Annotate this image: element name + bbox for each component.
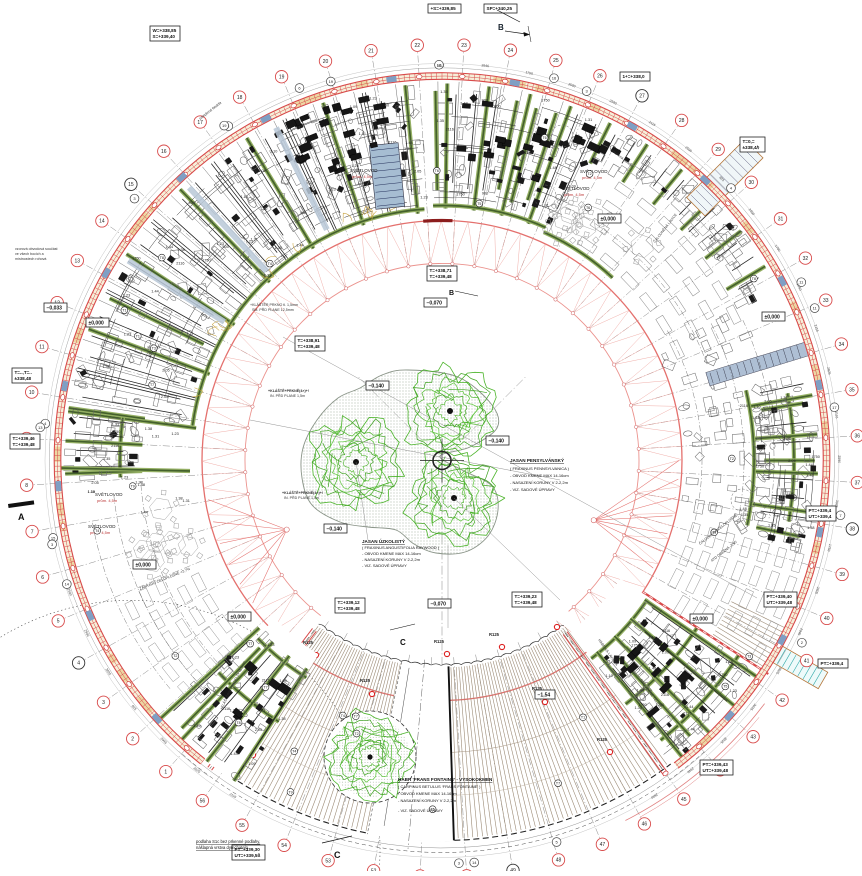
svg-text:T=+339,48: T=+339,48 xyxy=(298,344,321,349)
svg-text:ve všech bocich a: ve všech bocich a xyxy=(15,252,44,256)
svg-text:45: 45 xyxy=(681,797,687,803)
svg-text:40: 40 xyxy=(824,616,830,622)
svg-text:1.31: 1.31 xyxy=(780,396,787,400)
svg-text:SM. PŘD PLANE 12,5mm: SM. PŘD PLANE 12,5mm xyxy=(252,307,294,312)
svg-text:T5: T5 xyxy=(723,685,727,689)
svg-text:1750: 1750 xyxy=(202,258,210,262)
svg-text:1750: 1750 xyxy=(541,98,549,102)
svg-text:1750: 1750 xyxy=(756,465,764,469)
svg-text:W=+338,85: W=+338,85 xyxy=(153,28,177,33)
svg-text:2590: 2590 xyxy=(837,455,841,463)
svg-text:1.38: 1.38 xyxy=(177,248,184,252)
svg-text:−1,54: −1,54 xyxy=(538,693,551,699)
svg-text:T=+339,46: T=+339,46 xyxy=(13,436,36,441)
svg-text:13: 13 xyxy=(75,258,81,264)
svg-text:1.44: 1.44 xyxy=(151,290,158,294)
svg-text:−0,070: −0,070 xyxy=(431,602,447,608)
svg-text:T8: T8 xyxy=(160,256,164,260)
svg-text:1.35: 1.35 xyxy=(784,436,791,440)
svg-text:- NASAZENÍ KORUNY V 2-2,2m: - NASAZENÍ KORUNY V 2-2,2m xyxy=(362,557,421,562)
svg-text:JASAN PENSYLVÁNSKÝ: JASAN PENSYLVÁNSKÝ xyxy=(510,457,564,463)
svg-text:T=+338,91: T=+338,91 xyxy=(298,338,321,343)
svg-text:22: 22 xyxy=(415,43,421,49)
svg-text:2946: 2946 xyxy=(481,63,489,68)
svg-text:SVĚTLOVOD: SVĚTLOVOD xyxy=(580,167,608,174)
svg-text:2.05: 2.05 xyxy=(414,170,421,174)
svg-text:1.31: 1.31 xyxy=(152,434,159,438)
svg-text:1.10: 1.10 xyxy=(251,701,258,705)
svg-text:1.23: 1.23 xyxy=(420,196,427,200)
svg-text:( CARPINUS BETULUS ‘FRANS FONT: ( CARPINUS BETULUS ‘FRANS FONTAINE’ ) xyxy=(398,784,481,789)
svg-text:1.48: 1.48 xyxy=(138,483,145,487)
svg-text:14: 14 xyxy=(65,582,70,587)
svg-text:B: B xyxy=(449,290,454,297)
svg-text:2.05: 2.05 xyxy=(788,459,795,463)
svg-text:T=+339,23: T=+339,23 xyxy=(515,594,538,599)
svg-text:IN. PŘD PLANE 1,5m: IN. PŘD PLANE 1,5m xyxy=(270,393,305,398)
svg-text:900: 900 xyxy=(494,105,500,109)
svg-text:−0,070: −0,070 xyxy=(427,301,443,307)
svg-text:1.09: 1.09 xyxy=(258,169,265,173)
svg-text:54: 54 xyxy=(281,843,287,849)
svg-text:48: 48 xyxy=(556,858,562,864)
svg-text:T2: T2 xyxy=(354,732,358,736)
svg-text:1750: 1750 xyxy=(437,64,445,68)
svg-text:−0,140: −0,140 xyxy=(489,439,505,445)
svg-text:C: C xyxy=(334,850,341,860)
svg-text:1.35: 1.35 xyxy=(103,457,110,461)
svg-text:1750: 1750 xyxy=(523,151,531,155)
svg-text:34: 34 xyxy=(839,342,845,348)
svg-text:10: 10 xyxy=(29,390,35,396)
svg-text:1750: 1750 xyxy=(132,257,140,261)
svg-text:29: 29 xyxy=(715,147,721,153)
svg-text:1.38: 1.38 xyxy=(145,427,152,431)
svg-text:19: 19 xyxy=(329,79,334,84)
svg-text:UT=+339,48: UT=+339,48 xyxy=(703,768,729,773)
svg-text:T6: T6 xyxy=(586,206,590,210)
svg-text:18: 18 xyxy=(237,95,243,101)
svg-text:T=+339,12: T=+339,12 xyxy=(338,600,361,605)
svg-text:35: 35 xyxy=(849,387,855,393)
svg-text:T4: T4 xyxy=(95,529,99,533)
svg-text:5: 5 xyxy=(57,619,60,625)
svg-text:+KLÁŠTĚR PRKNO tl. 1,5mm: +KLÁŠTĚR PRKNO tl. 1,5mm xyxy=(250,302,298,307)
svg-text:2116: 2116 xyxy=(740,404,748,408)
svg-text:1.10: 1.10 xyxy=(753,405,760,409)
svg-text:1.38: 1.38 xyxy=(404,147,411,151)
svg-text:2.05: 2.05 xyxy=(161,395,168,399)
svg-text:1.31: 1.31 xyxy=(112,422,119,426)
svg-text:1.10: 1.10 xyxy=(260,207,267,211)
svg-text:6: 6 xyxy=(41,575,44,581)
svg-text:- VIZ. SADOVÉ ÚPRAVY: - VIZ. SADOVÉ ÚPRAVY xyxy=(398,808,443,813)
svg-text:1.44: 1.44 xyxy=(637,688,644,692)
svg-text:19: 19 xyxy=(279,75,285,81)
svg-text:T2: T2 xyxy=(587,172,591,176)
svg-text:1.35: 1.35 xyxy=(603,660,610,664)
svg-text:1.23: 1.23 xyxy=(171,432,178,436)
svg-text:T5: T5 xyxy=(477,202,481,206)
svg-text:28: 28 xyxy=(679,118,685,124)
svg-text:900: 900 xyxy=(482,191,488,195)
svg-text:prům. 4,5m: prům. 4,5m xyxy=(97,498,118,503)
svg-text:1.31: 1.31 xyxy=(183,499,190,503)
svg-text:1.10: 1.10 xyxy=(241,195,248,199)
svg-text:1.44: 1.44 xyxy=(686,705,693,709)
svg-text:T2: T2 xyxy=(730,457,734,461)
svg-text:55: 55 xyxy=(239,823,245,829)
svg-text:A: A xyxy=(18,512,25,522)
svg-text:1.09: 1.09 xyxy=(248,762,255,766)
svg-text:+S=+339,85: +S=+339,85 xyxy=(431,6,457,11)
svg-text:2.05: 2.05 xyxy=(764,400,771,404)
svg-text:1.10: 1.10 xyxy=(193,724,200,728)
svg-text:T4: T4 xyxy=(268,262,272,266)
svg-text:7: 7 xyxy=(31,529,34,535)
svg-text:T9: T9 xyxy=(288,790,292,794)
svg-text:±0,000: ±0,000 xyxy=(136,563,151,569)
svg-text:16: 16 xyxy=(552,76,557,81)
svg-text:2116: 2116 xyxy=(661,693,669,697)
svg-text:R125: R125 xyxy=(434,639,445,644)
svg-text:1.44: 1.44 xyxy=(805,463,812,467)
svg-text:25: 25 xyxy=(553,58,559,64)
svg-text:±0,000: ±0,000 xyxy=(231,615,246,621)
svg-text:2116: 2116 xyxy=(786,492,794,496)
svg-text:1.48: 1.48 xyxy=(247,720,254,724)
svg-text:1.23: 1.23 xyxy=(267,643,274,647)
svg-text:20: 20 xyxy=(323,59,329,65)
svg-text:T3: T3 xyxy=(152,347,156,351)
svg-text:36: 36 xyxy=(855,434,861,440)
svg-text:3: 3 xyxy=(102,700,105,706)
svg-text:- VIZ. SADOVÉ ÚPRAVY: - VIZ. SADOVÉ ÚPRAVY xyxy=(510,487,555,492)
svg-text:1.23: 1.23 xyxy=(121,475,128,479)
svg-text:1.44: 1.44 xyxy=(648,635,655,639)
svg-text:T=+339,48: T=+339,48 xyxy=(430,274,453,279)
svg-text:T4: T4 xyxy=(292,750,296,754)
svg-text:1.23: 1.23 xyxy=(369,97,376,101)
svg-text:2116: 2116 xyxy=(786,539,794,543)
svg-text:T8: T8 xyxy=(752,277,756,281)
svg-text:1: 1 xyxy=(164,769,167,775)
svg-text:2116: 2116 xyxy=(262,679,270,683)
svg-text:T=+338,71: T=+338,71 xyxy=(430,268,453,273)
svg-text:UT=+339,5ß: UT=+339,5ß xyxy=(235,853,261,858)
svg-text:prům. 4,5m: prům. 4,5m xyxy=(352,174,373,179)
svg-text:2: 2 xyxy=(131,737,134,743)
svg-text:37: 37 xyxy=(855,480,861,486)
svg-text:- VIZ. SADOVÉ ÚPRAVY: - VIZ. SADOVÉ ÚPRAVY xyxy=(362,563,407,568)
svg-text:4: 4 xyxy=(77,661,80,667)
svg-text:PT=+339,4: PT=+339,4 xyxy=(809,508,832,513)
svg-text:T2: T2 xyxy=(173,654,177,658)
svg-text:26: 26 xyxy=(597,74,603,80)
svg-text:T4: T4 xyxy=(341,714,345,718)
svg-text:- OBVOD KMENE MAX 14-16cm: - OBVOD KMENE MAX 14-16cm xyxy=(362,551,421,556)
svg-text:1.31: 1.31 xyxy=(251,238,258,242)
svg-text:prům. 4,5m: prům. 4,5m xyxy=(564,192,585,197)
svg-text:PT=+339,43: PT=+339,43 xyxy=(703,762,729,767)
svg-text:15: 15 xyxy=(51,535,56,540)
svg-text:−0,033: −0,033 xyxy=(47,306,63,312)
svg-text:1.38: 1.38 xyxy=(278,717,285,721)
svg-text:SP=+340,25: SP=+340,25 xyxy=(487,6,513,11)
svg-text:53: 53 xyxy=(325,858,331,864)
svg-text:T1: T1 xyxy=(122,309,126,313)
svg-text:1.10: 1.10 xyxy=(88,490,95,494)
svg-text:( FRAXINUS ANGUSTIFOLIA RAYWOO: ( FRAXINUS ANGUSTIFOLIA RAYWOOD ) xyxy=(362,545,440,550)
svg-text:2116: 2116 xyxy=(176,261,184,265)
svg-text:T=+339,48: T=+339,48 xyxy=(13,442,36,447)
svg-text:- NASAZENÍ KORUNY V 2-2,2m: - NASAZENÍ KORUNY V 2-2,2m xyxy=(398,798,457,803)
svg-text:- OBVOD KMENE MAX 14-16cm: - OBVOD KMENE MAX 14-16cm xyxy=(398,791,457,796)
svg-text:16: 16 xyxy=(161,149,167,155)
svg-text:B: B xyxy=(498,23,504,32)
svg-text:1.44: 1.44 xyxy=(687,728,694,732)
svg-text:1.35: 1.35 xyxy=(275,246,282,250)
svg-text:- OBVOD KMENE MAX 14-16cm: - OBVOD KMENE MAX 14-16cm xyxy=(510,473,569,478)
svg-text:místnostech rohová: místnostech rohová xyxy=(15,257,46,261)
svg-text:- NASAZENÍ KORUNY V 2-2,2m: - NASAZENÍ KORUNY V 2-2,2m xyxy=(510,480,569,485)
svg-text:+KLÁŠTĚ+PRKNĚ(4×)+!: +KLÁŠTĚ+PRKNĚ(4×)+! xyxy=(268,388,309,393)
svg-text:vzorová obvodová součást: vzorová obvodová součást xyxy=(15,247,58,251)
svg-text:T1: T1 xyxy=(581,716,585,720)
svg-text:1.10: 1.10 xyxy=(270,149,277,153)
svg-text:T7: T7 xyxy=(263,686,267,690)
svg-text:56: 56 xyxy=(200,798,206,804)
svg-text:21: 21 xyxy=(368,48,374,54)
svg-text:1.38: 1.38 xyxy=(103,365,110,369)
svg-text:1.23: 1.23 xyxy=(328,187,335,191)
svg-text:38: 38 xyxy=(850,527,856,533)
svg-text:1.10: 1.10 xyxy=(605,674,612,678)
svg-text:T=..,T=..: T=..,T=.. xyxy=(15,370,32,375)
svg-text:32: 32 xyxy=(803,256,809,262)
svg-text:T6: T6 xyxy=(542,136,546,140)
svg-text:SVĚTLOVOD: SVĚTLOVOD xyxy=(562,184,590,191)
svg-text:1.38: 1.38 xyxy=(807,526,814,530)
svg-text:S=+339,40: S=+339,40 xyxy=(153,34,176,39)
svg-text:SVĚTLOVOD: SVĚTLOVOD xyxy=(95,490,123,497)
svg-text:1.48: 1.48 xyxy=(405,141,412,145)
svg-text:T9: T9 xyxy=(131,484,135,488)
svg-text:1.31: 1.31 xyxy=(264,274,271,278)
svg-text:JASAN ÚZKOLISTÝ: JASAN ÚZKOLISTÝ xyxy=(362,538,405,544)
svg-text:43: 43 xyxy=(750,735,756,741)
svg-text:PT=+339,40: PT=+339,40 xyxy=(767,594,793,599)
svg-text:IN. PŘD PLANE 1,5m: IN. PŘD PLANE 1,5m xyxy=(284,495,319,500)
svg-text:UT=+339,4: UT=+339,4 xyxy=(809,514,832,519)
svg-text:R125: R125 xyxy=(303,640,314,645)
svg-text:2.05: 2.05 xyxy=(91,481,98,485)
svg-text:30: 30 xyxy=(749,180,755,186)
svg-text:19: 19 xyxy=(222,123,227,128)
svg-text:1.31: 1.31 xyxy=(359,132,366,136)
svg-text:T=0,=: T=0,= xyxy=(743,139,755,144)
svg-text:−0,140: −0,140 xyxy=(369,384,385,390)
svg-text:1.48: 1.48 xyxy=(549,166,556,170)
svg-text:1750: 1750 xyxy=(811,455,819,459)
svg-text:900: 900 xyxy=(300,211,306,215)
svg-text:T7: T7 xyxy=(248,642,252,646)
svg-text:T7: T7 xyxy=(556,782,560,786)
svg-text:±0,000: ±0,000 xyxy=(601,217,616,223)
svg-text:UT=+339,48: UT=+339,48 xyxy=(767,600,793,605)
svg-text:2.05: 2.05 xyxy=(255,728,262,732)
svg-text:27: 27 xyxy=(639,94,645,100)
svg-text:T=+339,48: T=+339,48 xyxy=(338,606,361,611)
svg-text:15: 15 xyxy=(128,182,134,188)
svg-text:1.35: 1.35 xyxy=(440,90,447,94)
svg-text:T8: T8 xyxy=(236,721,240,725)
svg-text:14: 14 xyxy=(99,219,105,225)
svg-text:R125: R125 xyxy=(597,737,608,742)
svg-text:2116: 2116 xyxy=(446,127,454,131)
svg-text:11: 11 xyxy=(39,344,44,350)
svg-text:1+=+338,0: 1+=+338,0 xyxy=(623,74,646,79)
svg-text:±338,4ℎ: ±338,4ℎ xyxy=(743,145,760,150)
svg-text:C: C xyxy=(400,638,406,647)
svg-text:1.38: 1.38 xyxy=(175,497,182,501)
svg-text:1750: 1750 xyxy=(719,673,727,677)
svg-text:( FRAXINUS PENNSYLVANICA ): ( FRAXINUS PENNSYLVANICA ) xyxy=(510,466,570,471)
svg-text:39: 39 xyxy=(839,572,845,578)
svg-text:17: 17 xyxy=(832,405,837,410)
svg-text:±0,000: ±0,000 xyxy=(693,617,708,623)
svg-text:1.23: 1.23 xyxy=(730,689,737,693)
svg-text:T3: T3 xyxy=(747,655,751,659)
svg-text:SVĚTLOVOD: SVĚTLOVOD xyxy=(88,522,116,529)
svg-text:1.44: 1.44 xyxy=(230,752,237,756)
svg-text:1.09: 1.09 xyxy=(629,639,636,643)
svg-text:PT=+339,4: PT=+339,4 xyxy=(821,661,844,666)
svg-text:±0,000: ±0,000 xyxy=(765,315,780,321)
svg-text:2116: 2116 xyxy=(662,629,670,633)
svg-text:13: 13 xyxy=(38,425,43,430)
svg-text:31: 31 xyxy=(778,217,784,223)
svg-text:24: 24 xyxy=(508,48,514,54)
svg-text:±0,000: ±0,000 xyxy=(89,321,104,327)
svg-text:46: 46 xyxy=(642,822,648,828)
svg-text:T6: T6 xyxy=(435,169,439,173)
svg-text:HABR ‘FRANS FONTAINE’ - VYSOKO: HABR ‘FRANS FONTAINE’ - VYSOKOKMEN xyxy=(398,777,493,782)
svg-text:1.23: 1.23 xyxy=(258,709,265,713)
svg-text:±338,48: ±338,48 xyxy=(15,376,32,381)
svg-text:1.09: 1.09 xyxy=(279,679,286,683)
svg-text:14: 14 xyxy=(472,860,477,865)
svg-text:1750: 1750 xyxy=(456,193,464,197)
svg-text:podlaha S1c bez prkenné podlah: podlaha S1c bez prkenné podlahy, xyxy=(196,839,260,844)
svg-text:8: 8 xyxy=(25,483,28,489)
svg-text:47: 47 xyxy=(600,842,606,848)
svg-text:23: 23 xyxy=(461,43,467,49)
svg-text:R125: R125 xyxy=(489,632,500,637)
svg-text:T7: T7 xyxy=(150,383,154,387)
svg-text:2.05: 2.05 xyxy=(162,369,169,373)
svg-text:R125: R125 xyxy=(360,678,371,683)
svg-text:nášlapná vrstva dymchatelo: nášlapná vrstva dymchatelo xyxy=(196,845,249,850)
svg-text:1.35: 1.35 xyxy=(741,513,748,517)
svg-text:1.48: 1.48 xyxy=(806,474,813,478)
svg-text:T1: T1 xyxy=(136,334,140,338)
svg-text:41: 41 xyxy=(804,658,810,664)
svg-text:T7: T7 xyxy=(354,715,358,719)
svg-text:1.31: 1.31 xyxy=(585,118,592,122)
svg-text:1.35: 1.35 xyxy=(635,706,642,710)
svg-text:SVĚTLOVOD: SVĚTLOVOD xyxy=(350,166,378,173)
svg-text:1.38: 1.38 xyxy=(725,660,732,664)
svg-text:T=+339,48: T=+339,48 xyxy=(515,600,538,605)
svg-text:42: 42 xyxy=(779,698,785,704)
svg-text:2116: 2116 xyxy=(683,711,691,715)
svg-text:+KLÁŠTĚ+PRKNĚ(4×)+!: +KLÁŠTĚ+PRKNĚ(4×)+! xyxy=(282,490,323,495)
svg-text:−0,140: −0,140 xyxy=(327,527,343,533)
svg-text:1.35: 1.35 xyxy=(437,119,444,123)
svg-text:1750: 1750 xyxy=(112,430,120,434)
svg-text:33: 33 xyxy=(823,298,829,304)
svg-text:2116: 2116 xyxy=(111,444,119,448)
